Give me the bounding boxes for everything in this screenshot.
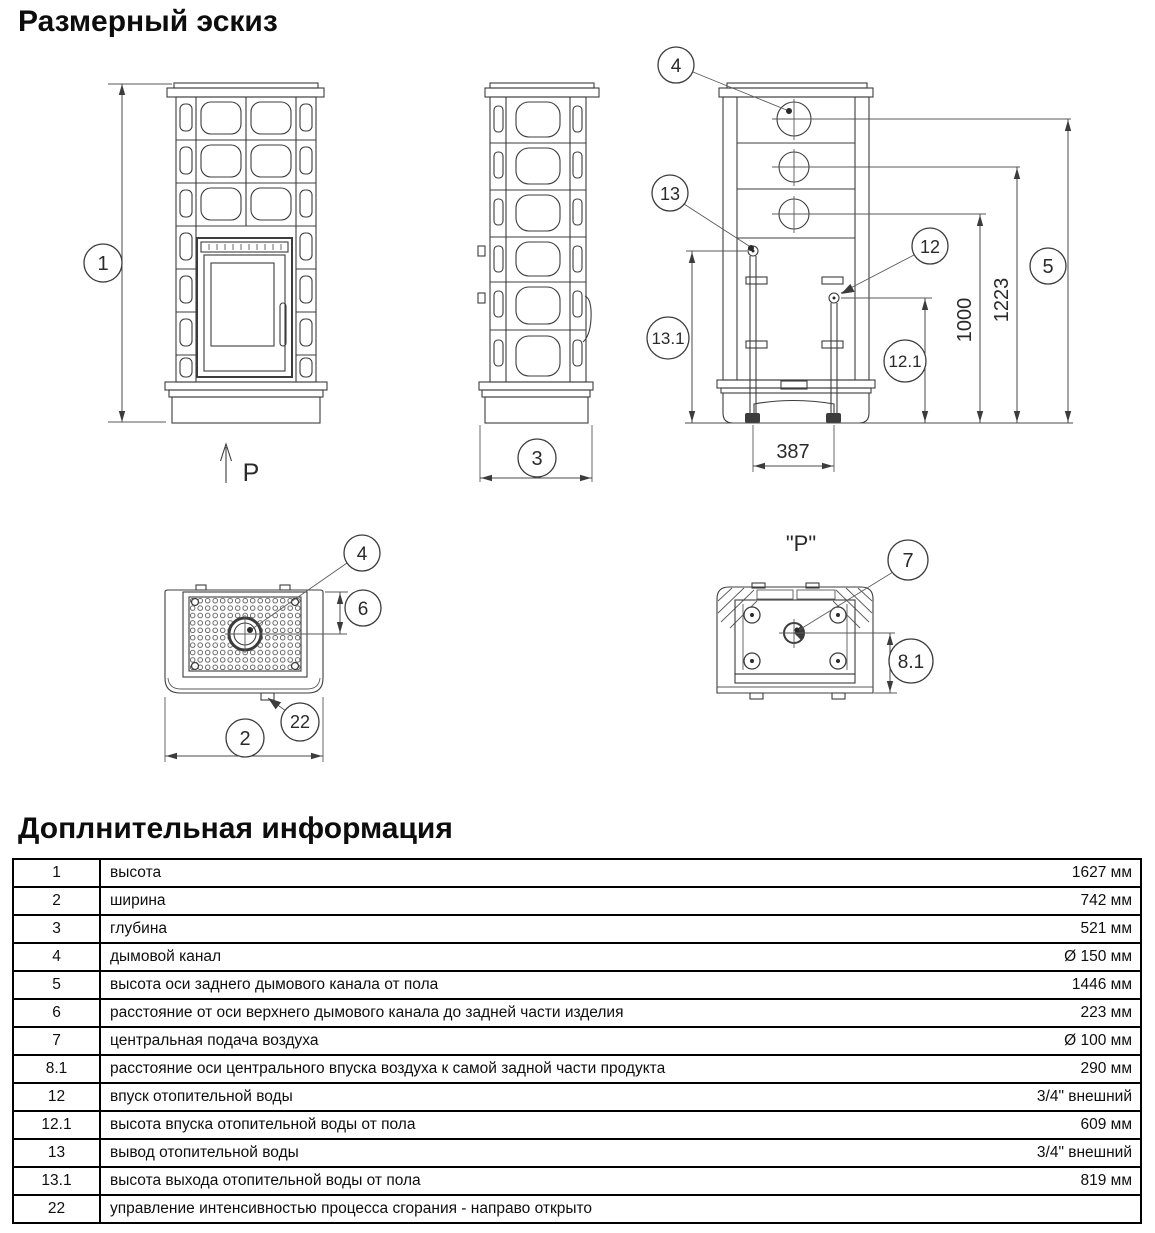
dim-5: 5 [1030, 119, 1071, 423]
rear-fitting-12-side [478, 293, 485, 303]
callout-12-label: 12 [920, 237, 940, 257]
stove-door [197, 238, 292, 377]
dim-387: 387 [753, 425, 834, 472]
spec-table: 1высота1627 мм 2ширина742 мм 3глубина521… [12, 858, 1142, 1224]
row-desc: управление интенсивностью процесса сгора… [100, 1195, 960, 1223]
row-num: 22 [13, 1195, 100, 1223]
row-value: Ø 100 мм [960, 1027, 1141, 1055]
table-row: 6расстояние от оси верхнего дымового кан… [13, 999, 1141, 1027]
rear-fitting-13-side [478, 246, 485, 256]
row-value: 290 мм [960, 1055, 1141, 1083]
row-desc: расстояние оси центрального впуска возду… [100, 1055, 960, 1083]
row-value: 3/4" внешний [960, 1083, 1141, 1111]
row-value: 521 мм [960, 915, 1141, 943]
table-row: 12.1высота впуска отопительной воды от п… [13, 1111, 1141, 1139]
flue-openings [772, 99, 1071, 233]
bottom-view: "P" [717, 531, 933, 699]
callout-4-top-label: 4 [357, 544, 368, 565]
row-desc: расстояние от оси верхнего дымового кана… [100, 999, 960, 1027]
table-row: 8.1расстояние оси центрального впуска во… [13, 1055, 1141, 1083]
row-desc: впуск отопительной воды [100, 1083, 960, 1111]
table-row: 13вывод отопительной воды3/4" внешний [13, 1139, 1141, 1167]
row-num: 8.1 [13, 1055, 100, 1083]
view-p-label: "P" [786, 531, 816, 556]
dimensional-sketch: 1 P [0, 0, 1155, 800]
table-row: 5высота оси заднего дымового канала от п… [13, 971, 1141, 999]
dim-13-1: 13.1 [647, 251, 747, 423]
front-base [165, 382, 327, 423]
callout-2-label: 2 [239, 728, 250, 750]
row-value: 819 мм [960, 1167, 1141, 1195]
section-title: Доплнительная информация [18, 812, 453, 846]
dim-1000-label: 1000 [954, 298, 976, 343]
front-body [165, 83, 327, 423]
table-row: 22управление интенсивностью процесса сго… [13, 1195, 1141, 1223]
dim-387-label: 387 [776, 441, 809, 463]
callout-8-1-label: 8.1 [898, 652, 924, 673]
rear-view: 4 13 12 13.1 12.1 [647, 47, 1073, 472]
callout-13-label: 13 [660, 184, 680, 204]
row-desc: высота оси заднего дымового канала от по… [100, 971, 960, 999]
row-desc: глубина [100, 915, 960, 943]
row-num: 13.1 [13, 1167, 100, 1195]
row-desc: дымовой канал [100, 943, 960, 971]
callout-7-label: 7 [902, 550, 913, 572]
direction-p-label: P [243, 459, 260, 487]
top-view: 4 6 22 2 [165, 535, 381, 762]
side-tile-grid [490, 97, 586, 382]
row-value [960, 1195, 1141, 1223]
door-handle-side [583, 296, 591, 342]
row-value: 1446 мм [960, 971, 1141, 999]
row-desc: вывод отопительной воды [100, 1139, 960, 1167]
row-value: 742 мм [960, 887, 1141, 915]
callout-6-label: 6 [358, 599, 369, 620]
row-num: 3 [13, 915, 100, 943]
damper-control [261, 693, 274, 700]
row-num: 5 [13, 971, 100, 999]
row-value: 3/4" внешний [960, 1139, 1141, 1167]
row-desc: высота впуска отопительной воды от пола [100, 1111, 960, 1139]
row-num: 7 [13, 1027, 100, 1055]
page: Размерный эскиз [0, 0, 1155, 1233]
dim-1223-label: 1223 [991, 278, 1013, 323]
door-glass [211, 263, 274, 346]
table-row: 4дымовой каналØ 150 мм [13, 943, 1141, 971]
callout-5-label: 5 [1042, 256, 1053, 278]
row-num: 6 [13, 999, 100, 1027]
row-value: 1627 мм [960, 859, 1141, 887]
table-row: 1высота1627 мм [13, 859, 1141, 887]
row-num: 2 [13, 887, 100, 915]
water-fittings [745, 246, 841, 423]
row-desc: центральная подача воздуха [100, 1027, 960, 1055]
table-row: 12впуск отопительной воды3/4" внешний [13, 1083, 1141, 1111]
callout-1-label: 1 [97, 253, 108, 275]
dim-1000: 1000 [954, 214, 983, 423]
dim-1223: 1223 [991, 167, 1020, 423]
row-num: 12 [13, 1083, 100, 1111]
callout-3-label: 3 [531, 448, 542, 470]
dim-8-1: 8.1 [874, 633, 933, 693]
callout-22-label: 22 [290, 712, 310, 732]
corner-hatching [718, 588, 872, 628]
row-desc: высота выхода отопительной воды от пола [100, 1167, 960, 1195]
front-view: 1 P [84, 83, 327, 487]
dim-6: 6 [325, 590, 381, 634]
table-row: 7центральная подача воздухаØ 100 мм [13, 1027, 1141, 1055]
callout-4-rear-label: 4 [671, 56, 682, 77]
table-row: 2ширина742 мм [13, 887, 1141, 915]
row-desc: ширина [100, 887, 960, 915]
side-view: 3 [478, 83, 599, 482]
table-row: 13.1высота выхода отопительной воды от п… [13, 1167, 1141, 1195]
row-value: 223 мм [960, 999, 1141, 1027]
row-desc: высота [100, 859, 960, 887]
dim-height: 1 [84, 84, 172, 422]
row-num: 4 [13, 943, 100, 971]
callout-12-1-label: 12.1 [888, 352, 921, 371]
row-num: 13 [13, 1139, 100, 1167]
callout-13-1-label: 13.1 [651, 329, 684, 348]
row-num: 12.1 [13, 1111, 100, 1139]
dim-depth: 3 [480, 425, 592, 482]
row-value: 609 мм [960, 1111, 1141, 1139]
table-row: 3глубина521 мм [13, 915, 1141, 943]
view-direction-arrow: P [221, 444, 260, 487]
row-value: Ø 150 мм [960, 943, 1141, 971]
row-num: 1 [13, 859, 100, 887]
